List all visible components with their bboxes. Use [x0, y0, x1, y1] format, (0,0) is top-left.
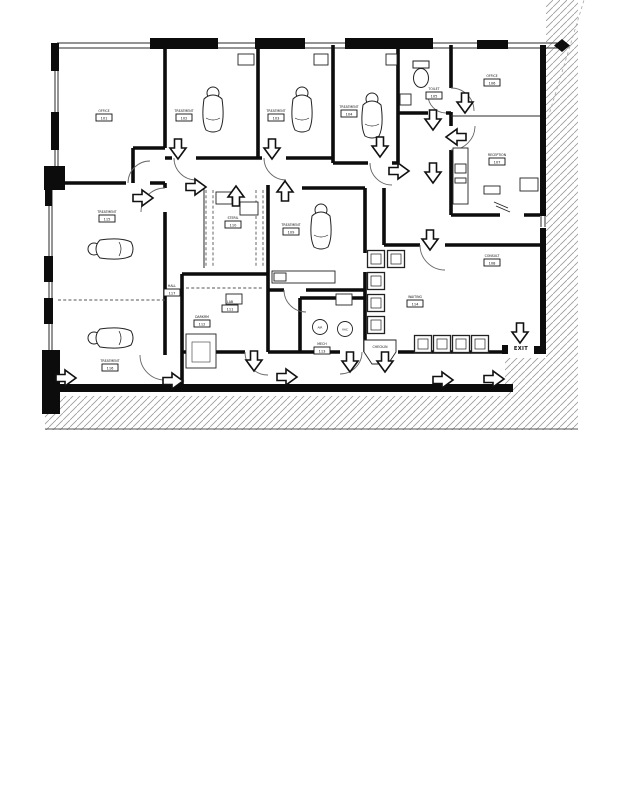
- svg-text:101: 101: [101, 117, 108, 121]
- svg-text:MECH: MECH: [317, 342, 327, 346]
- room-label-reception: RECEPTION 107: [488, 153, 507, 165]
- egress-arrow-up: [277, 181, 293, 201]
- svg-text:104: 104: [346, 113, 354, 117]
- office-desk: [453, 148, 468, 204]
- svg-text:TREATMENT: TREATMENT: [173, 109, 193, 113]
- waiting-chair-symbol: [453, 336, 470, 353]
- restroom-sink: [400, 94, 411, 105]
- dental-chair-symbol: [362, 93, 382, 138]
- egress-arrow-down: [425, 163, 441, 183]
- svg-text:102: 102: [181, 117, 188, 121]
- vacuum-pump-label: VAC: [342, 328, 348, 332]
- room-label-steril: STERIL 110: [225, 216, 241, 228]
- svg-text:CONSULT: CONSULT: [485, 254, 500, 258]
- svg-text:TREATMENT: TREATMENT: [338, 105, 358, 109]
- svg-text:109: 109: [288, 231, 296, 235]
- svg-text:WAITING: WAITING: [408, 295, 422, 299]
- svg-text:TOILET: TOILET: [427, 87, 439, 91]
- svg-text:108: 108: [489, 262, 497, 266]
- mech-equipment: [336, 294, 352, 305]
- computer-monitor: [455, 164, 466, 173]
- svg-text:112: 112: [199, 323, 206, 327]
- waiting-chair-symbol: [368, 273, 385, 290]
- air-compressor-label: AIR: [317, 326, 322, 330]
- room-label-consult: CONSULT 108: [484, 254, 500, 266]
- room-label-treat5: TREATMENT 116: [99, 359, 119, 371]
- egress-arrow-down: [170, 139, 186, 159]
- fixtures-layer: [88, 61, 489, 353]
- svg-text:DARKRM: DARKRM: [195, 315, 209, 319]
- egress-arrow-down: [422, 230, 438, 250]
- furniture: AIR VAC: [186, 54, 538, 368]
- egress-arrow-left: [446, 129, 466, 145]
- room-label-treat3: TREATMENT 104: [338, 105, 358, 117]
- egress-arrow-down: [264, 139, 280, 159]
- svg-text:114: 114: [412, 303, 420, 307]
- svg-text:LAB: LAB: [227, 300, 233, 304]
- window-lines: [49, 43, 566, 350]
- svg-text:STERIL: STERIL: [228, 216, 239, 220]
- cabinet: [314, 54, 328, 65]
- scanned-floor-plan-page: AIR VAC OFFICE 101 TREATMENT 102 TREATME…: [0, 0, 635, 803]
- svg-text:110: 110: [230, 224, 238, 228]
- cabinet: [386, 54, 397, 65]
- egress-arrow-right: [186, 179, 206, 195]
- room-label-office-tl: OFFICE 101: [96, 109, 112, 121]
- waiting-chair-symbol: [415, 336, 432, 353]
- room-label-toilet: TOILET 105: [426, 87, 442, 99]
- svg-text:117: 117: [169, 292, 176, 296]
- room-label-checkin: CHECK-IN: [372, 345, 388, 349]
- egress-arrow-right: [277, 369, 297, 385]
- desk-pens: [494, 202, 510, 212]
- svg-text:TREATMENT: TREATMENT: [99, 359, 119, 363]
- room-label-treat4: TREATMENT 115: [96, 210, 116, 222]
- svg-text:CHECK-IN: CHECK-IN: [372, 345, 388, 349]
- dental-chair-symbol: [292, 87, 312, 132]
- svg-text:107: 107: [494, 161, 501, 165]
- room-label-mech: MECH 113: [314, 342, 330, 354]
- waiting-chair-symbol: [388, 251, 405, 268]
- exit-label: EXIT: [514, 346, 528, 352]
- egress-arrow-down: [372, 137, 388, 157]
- dental-chair-symbol: [88, 328, 133, 348]
- dental-chair-symbol: [203, 87, 223, 132]
- waiting-chair-symbol: [368, 295, 385, 312]
- waiting-chair-symbol: [434, 336, 451, 353]
- svg-text:TREATMENT: TREATMENT: [280, 223, 300, 227]
- egress-arrow-down: [246, 351, 262, 371]
- svg-text:TREATMENT: TREATMENT: [96, 210, 116, 214]
- svg-text:TREATMENT: TREATMENT: [265, 109, 285, 113]
- printer: [520, 178, 538, 191]
- egress-arrow-right: [133, 190, 153, 206]
- cabinet: [238, 54, 254, 65]
- svg-text:113: 113: [319, 350, 326, 354]
- waiting-chair-symbol: [368, 317, 385, 334]
- svg-text:HALL: HALL: [168, 284, 176, 288]
- room-label-operatory: TREATMENT 109: [280, 223, 300, 235]
- svg-text:115: 115: [104, 218, 111, 222]
- sterilizer-unit: [240, 202, 258, 215]
- room-label-waiting: WAITING 114: [407, 295, 423, 307]
- room-label-treat2: TREATMENT 103: [265, 109, 285, 121]
- keyboard: [484, 186, 500, 194]
- svg-text:103: 103: [273, 117, 280, 121]
- waiting-chair-symbol: [472, 336, 489, 353]
- room-label-darkroom: DARKRM 112: [194, 315, 210, 327]
- dental-chair-symbol: [88, 239, 133, 259]
- egress-arrow-right: [389, 163, 409, 179]
- svg-text:111: 111: [227, 308, 234, 312]
- room-label-office-tr: OFFICE 106: [484, 74, 500, 86]
- darkroom-processor: [186, 334, 216, 368]
- svg-text:OFFICE: OFFICE: [486, 74, 497, 78]
- egress-arrow-down: [457, 93, 473, 113]
- svg-text:RECEPTION: RECEPTION: [488, 153, 507, 157]
- keyboard: [455, 178, 466, 183]
- egress-arrow-down: [342, 352, 358, 372]
- waiting-chair-symbol: [368, 251, 385, 268]
- toilet-symbol: [413, 61, 429, 88]
- room-label-treat1: TREATMENT 102: [173, 109, 193, 121]
- floor-plan-svg: AIR VAC OFFICE 101 TREATMENT 102 TREATME…: [0, 0, 635, 803]
- svg-text:105: 105: [431, 95, 438, 99]
- svg-text:106: 106: [489, 82, 497, 86]
- svg-text:116: 116: [107, 367, 115, 371]
- egress-arrow-down: [512, 323, 528, 343]
- operatory-sink: [274, 273, 286, 281]
- svg-text:OFFICE: OFFICE: [98, 109, 109, 113]
- dental-chair-symbol: [311, 204, 331, 249]
